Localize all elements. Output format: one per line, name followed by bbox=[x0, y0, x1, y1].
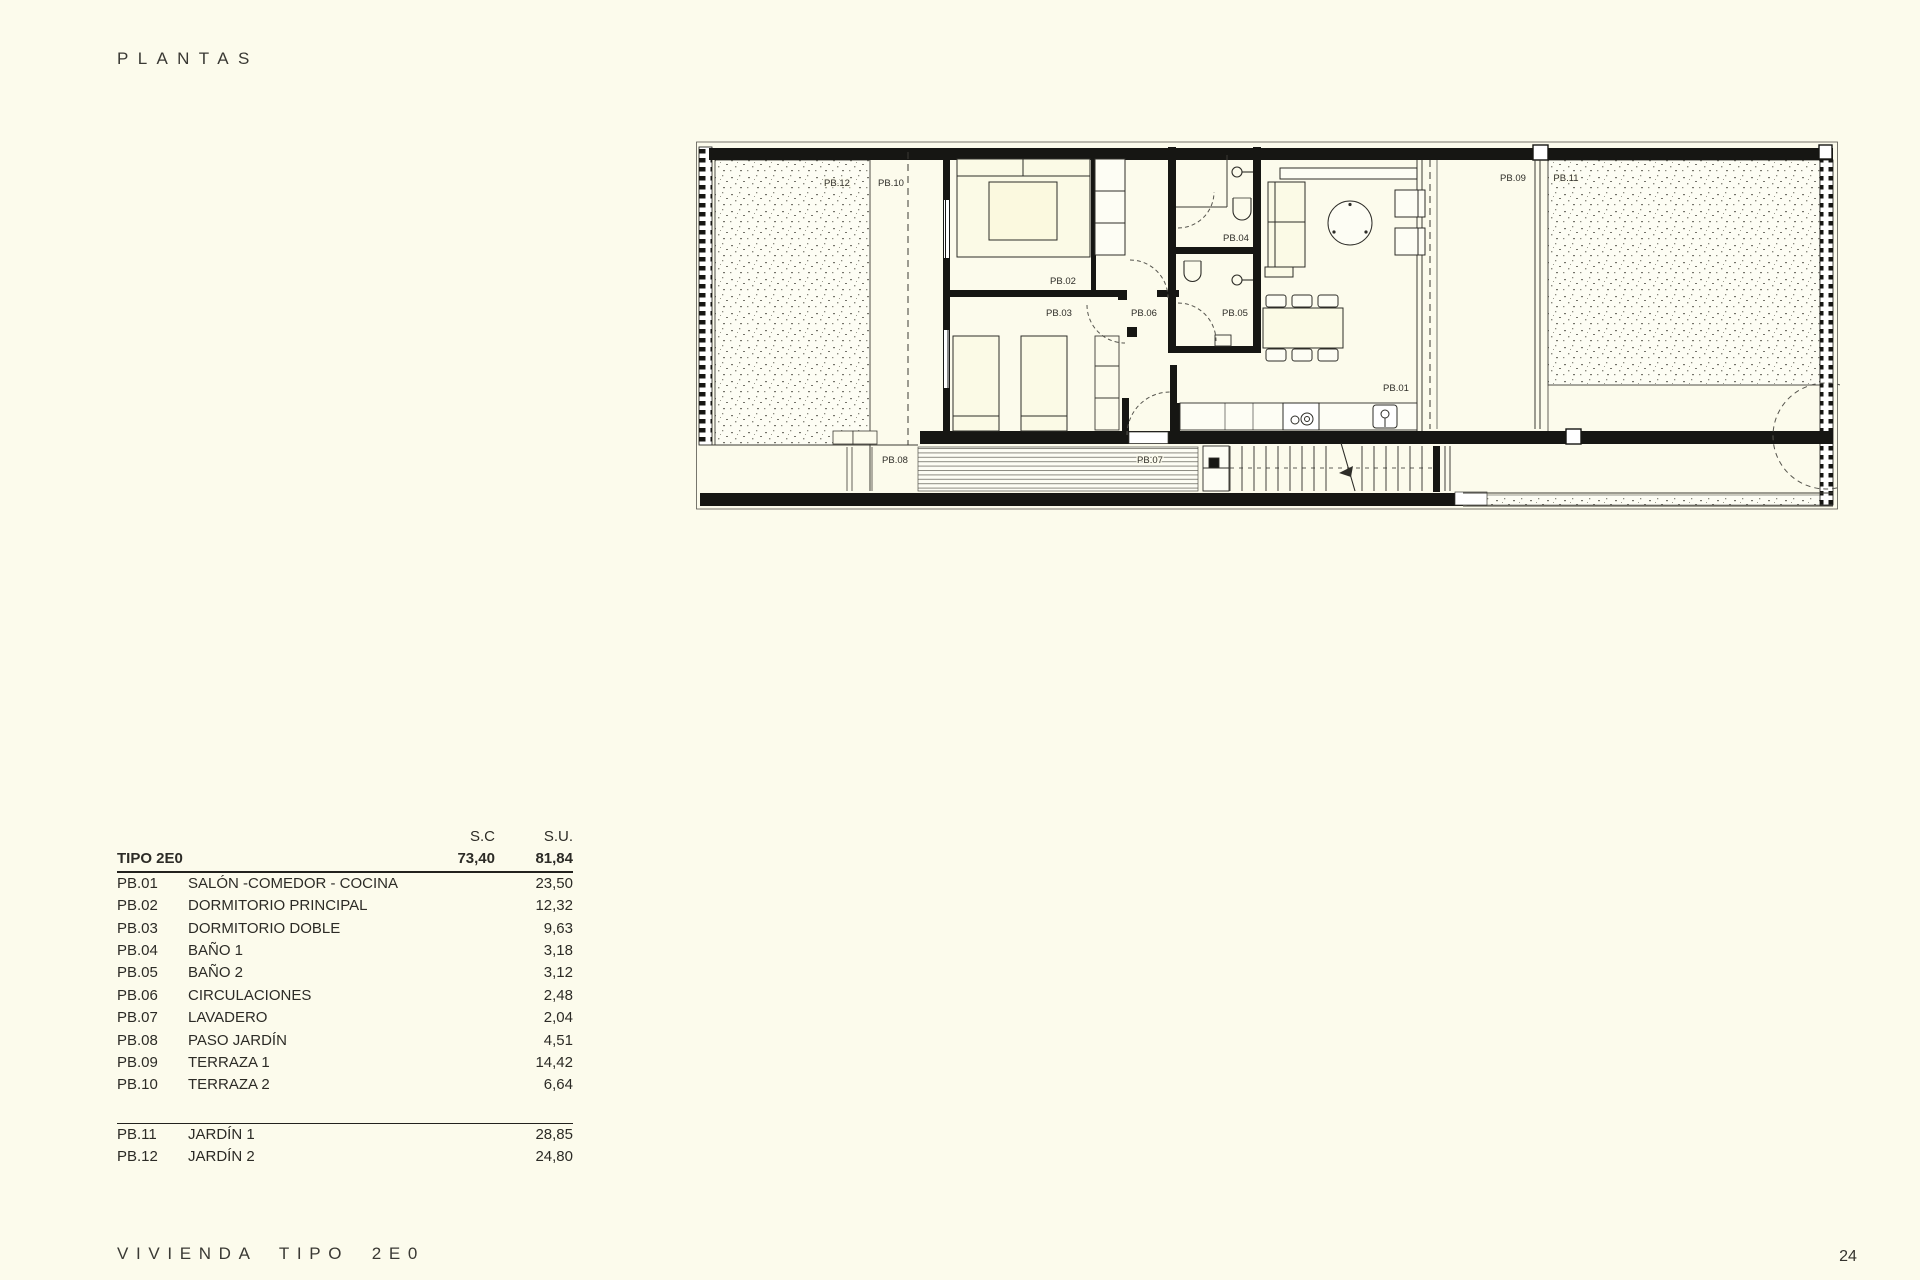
floor-plan-drawing: PB.12PB.10PB.02PB.03PB.06PB.04PB.05PB.01… bbox=[695, 140, 1840, 512]
room-label-pb-04: PB.04 bbox=[1223, 233, 1249, 244]
staircase bbox=[1230, 443, 1450, 491]
cell-c1: PB.03 bbox=[117, 918, 188, 940]
cell-c2: BAÑO 1 bbox=[188, 940, 415, 962]
cell-c4: 4,51 bbox=[495, 1030, 573, 1052]
room-label-pb-06: PB.06 bbox=[1131, 308, 1157, 319]
cell-c4: 6,64 bbox=[495, 1074, 573, 1096]
floor-plan: PB.12PB.10PB.02PB.03PB.06PB.04PB.05PB.01… bbox=[695, 140, 1840, 512]
col-header-su: S.U. bbox=[495, 826, 573, 848]
cell-c4: 2,04 bbox=[495, 1007, 573, 1029]
cell-c1: PB.01 bbox=[117, 873, 188, 895]
cell-c2: CIRCULACIONES bbox=[188, 985, 415, 1007]
room-label-pb-12: PB.12 bbox=[824, 178, 850, 189]
area-table-row: PB.07LAVADERO2,04 bbox=[117, 1007, 573, 1029]
cell-c4: 14,42 bbox=[495, 1052, 573, 1074]
area-table-row: PB.01SALÓN -COMEDOR - COCINA23,50 bbox=[117, 873, 573, 895]
cell-c2: DORMITORIO PRINCIPAL bbox=[188, 895, 415, 917]
cell-c2: DORMITORIO DOBLE bbox=[188, 918, 415, 940]
page-number: 24 bbox=[1828, 1248, 1868, 1266]
cell-c1: PB.09 bbox=[117, 1052, 188, 1074]
area-table-row: PB.12JARDÍN 224,80 bbox=[117, 1146, 573, 1168]
cell-c2: JARDÍN 1 bbox=[188, 1124, 415, 1146]
area-table-row: PB.03DORMITORIO DOBLE9,63 bbox=[117, 918, 573, 940]
cell-c1: PB.02 bbox=[117, 895, 188, 917]
portfolio-page: { "header": { "title": "PLANTAS" }, "foo… bbox=[0, 0, 1920, 1280]
area-table-row: PB.10TERRAZA 26,64 bbox=[117, 1074, 573, 1096]
cell-c4: 12,32 bbox=[495, 895, 573, 917]
cell-c4: 24,80 bbox=[495, 1146, 573, 1168]
room-label-pb-02: PB.02 bbox=[1050, 276, 1076, 287]
cell-c1: PB.05 bbox=[117, 962, 188, 984]
room-label-pb-09: PB.09 bbox=[1500, 173, 1526, 184]
cell-c2: SALÓN -COMEDOR - COCINA bbox=[188, 873, 415, 895]
total-su: 81,84 bbox=[495, 848, 573, 870]
total-label: TIPO 2E0 bbox=[117, 848, 415, 870]
deck-area bbox=[918, 447, 1198, 491]
page-title: PLANTAS bbox=[117, 49, 259, 69]
cell-c4: 2,48 bbox=[495, 985, 573, 1007]
col-header-sc: S.C bbox=[415, 826, 495, 848]
cell-c1: PB.11 bbox=[117, 1124, 188, 1146]
bathroom-fixtures bbox=[1184, 167, 1253, 346]
room-label-pb-01: PB.01 bbox=[1383, 383, 1409, 394]
area-table: S.C S.U. TIPO 2E0 73,40 81,84 PB.01SALÓN… bbox=[117, 826, 573, 1168]
area-table-row: PB.05BAÑO 23,12 bbox=[117, 962, 573, 984]
area-table-row: PB.06CIRCULACIONES2,48 bbox=[117, 985, 573, 1007]
table-divider bbox=[117, 1097, 573, 1124]
area-table-total-row: TIPO 2E0 73,40 81,84 bbox=[117, 848, 573, 872]
cell-c2: TERRAZA 1 bbox=[188, 1052, 415, 1074]
cell-c2: BAÑO 2 bbox=[188, 962, 415, 984]
room-label-pb-11: PB.11 bbox=[1553, 173, 1578, 184]
cell-c4: 3,18 bbox=[495, 940, 573, 962]
cell-c2: TERRAZA 2 bbox=[188, 1074, 415, 1096]
area-table-outdoor-rows: PB.11JARDÍN 128,85PB.12JARDÍN 224,80 bbox=[117, 1124, 573, 1169]
cell-c4: 28,85 bbox=[495, 1124, 573, 1146]
room-label-pb-07: PB.07 bbox=[1137, 455, 1163, 466]
cell-c4: 23,50 bbox=[495, 873, 573, 895]
cell-c2: JARDÍN 2 bbox=[188, 1146, 415, 1168]
cell-c1: PB.04 bbox=[117, 940, 188, 962]
area-table-rows: PB.01SALÓN -COMEDOR - COCINA23,50PB.02DO… bbox=[117, 873, 573, 1097]
footer-title: VIVIENDA TIPO 2E0 bbox=[117, 1244, 425, 1264]
cell-c4: 9,63 bbox=[495, 918, 573, 940]
cell-c4: 3,12 bbox=[495, 962, 573, 984]
room-label-pb-03: PB.03 bbox=[1046, 308, 1072, 319]
laundry-block bbox=[1203, 446, 1229, 491]
area-table-row: PB.04BAÑO 13,18 bbox=[117, 940, 573, 962]
cell-c2: PASO JARDÍN bbox=[188, 1030, 415, 1052]
cell-c2: LAVADERO bbox=[188, 1007, 415, 1029]
room-label-pb-10: PB.10 bbox=[878, 178, 904, 189]
cell-c1: PB.08 bbox=[117, 1030, 188, 1052]
cell-c1: PB.12 bbox=[117, 1146, 188, 1168]
area-table-row: PB.02DORMITORIO PRINCIPAL12,32 bbox=[117, 895, 573, 917]
cell-c1: PB.10 bbox=[117, 1074, 188, 1096]
area-table-header: S.C S.U. bbox=[117, 826, 573, 848]
area-table-row: PB.09TERRAZA 114,42 bbox=[117, 1052, 573, 1074]
cell-c1: PB.06 bbox=[117, 985, 188, 1007]
room-label-pb-05: PB.05 bbox=[1222, 308, 1248, 319]
total-sc: 73,40 bbox=[415, 848, 495, 870]
area-table-row: PB.08PASO JARDÍN4,51 bbox=[117, 1030, 573, 1052]
room-label-pb-08: PB.08 bbox=[882, 455, 908, 466]
cell-c1: PB.07 bbox=[117, 1007, 188, 1029]
area-table-row: PB.11JARDÍN 128,85 bbox=[117, 1124, 573, 1146]
